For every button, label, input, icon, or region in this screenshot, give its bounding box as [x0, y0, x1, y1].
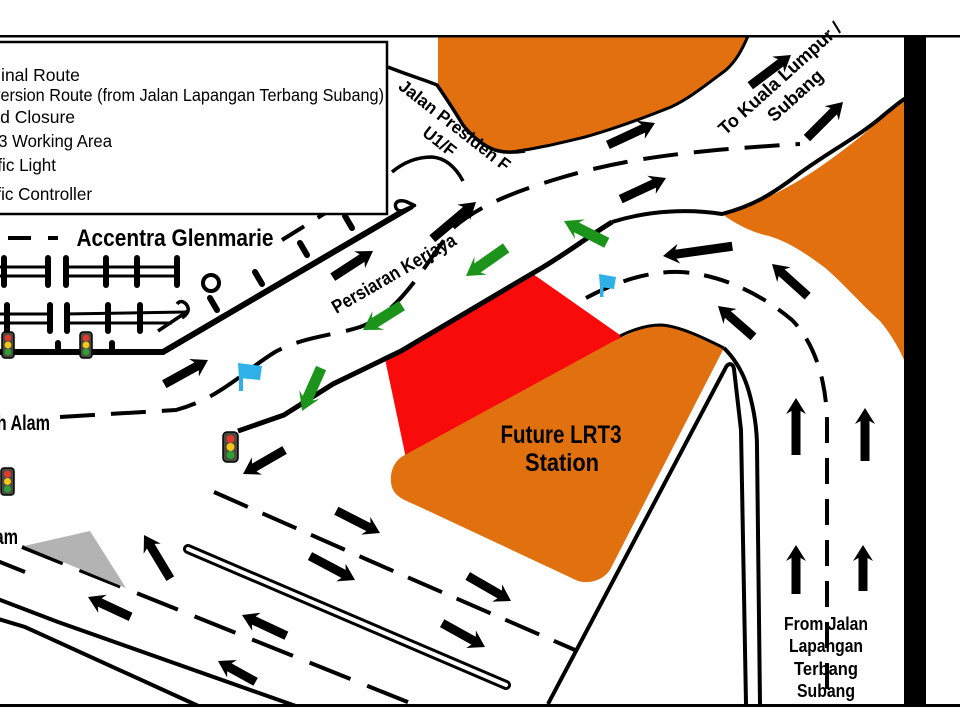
svg-text:Lapangan: Lapangan [789, 635, 863, 656]
svg-text:Diversion Route (from Jalan La: Diversion Route (from Jalan Lapangan Ter… [0, 85, 384, 105]
svg-text:Terbang: Terbang [794, 658, 858, 679]
svg-text:Station: Station [525, 449, 599, 477]
svg-text:Original Route: Original Route [0, 65, 80, 85]
svg-text:Accentra Glenmarie: Accentra Glenmarie [77, 225, 274, 252]
svg-text:To Shah Alam: To Shah Alam [0, 526, 18, 549]
svg-text:Subang: Subang [797, 680, 855, 701]
svg-text:LRT3 Working Area: LRT3 Working Area [0, 131, 112, 151]
svg-text:To Shah Alam: To Shah Alam [0, 412, 50, 435]
svg-text:Future LRT3: Future LRT3 [501, 421, 622, 449]
svg-text:Traffic Controller: Traffic Controller [0, 184, 92, 204]
svg-text:From Jalan: From Jalan [784, 613, 868, 634]
svg-text:Road Closure: Road Closure [0, 107, 75, 127]
svg-text:Traffic Light: Traffic Light [0, 155, 56, 175]
